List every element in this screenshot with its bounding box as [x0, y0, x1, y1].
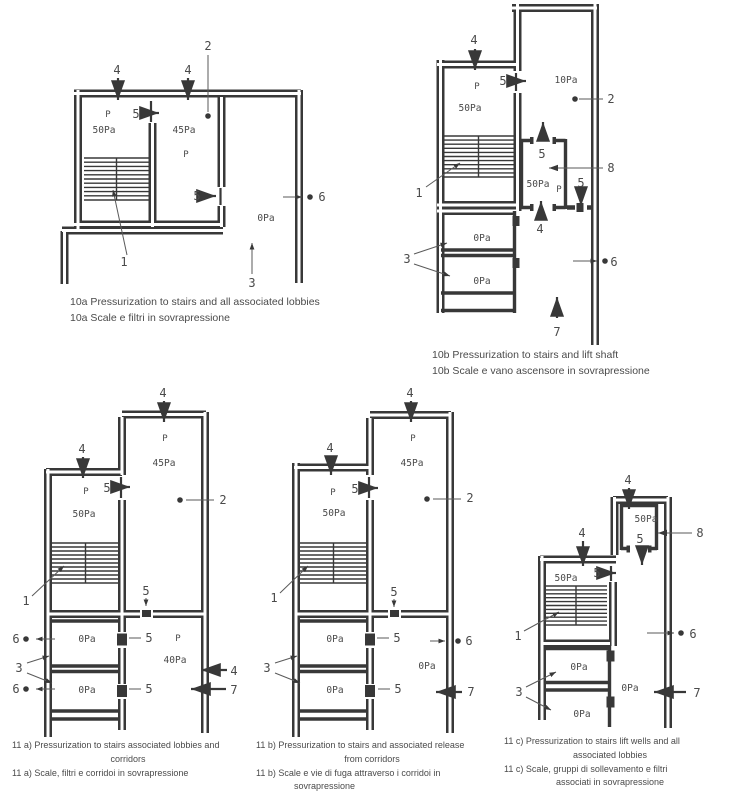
wall-gaps-11c	[540, 497, 668, 728]
label-p: P	[183, 150, 189, 160]
callout-3: 3	[248, 276, 255, 290]
label-0pa: 0Pa	[570, 662, 587, 673]
callout-7: 7	[693, 686, 700, 700]
label-45pa: 45Pa	[153, 458, 176, 469]
callout-5: 5	[499, 74, 506, 88]
callout-2: 2	[204, 39, 211, 53]
figure-11b: 4 P 45Pa 2 4 P 50Pa 5 1 5 0Pa 6 7 3 0Pa …	[263, 386, 474, 737]
callout-6: 6	[318, 190, 325, 204]
callout-5: 5	[103, 481, 110, 495]
door-stub	[648, 546, 652, 553]
dot-10a-6	[307, 194, 313, 200]
label-0pa: 0Pa	[473, 276, 490, 287]
callout-6: 6	[610, 255, 617, 269]
door-11a-corridor	[142, 610, 151, 617]
door-stub	[553, 137, 557, 144]
label-p: P	[474, 82, 480, 92]
callout-4: 4	[536, 222, 543, 236]
callout-6: 6	[689, 627, 696, 641]
figure-11c: 4 50Pa 5 8 4 50Pa 5 1 6 7 3 0Pa 0Pa 0Pa	[514, 473, 703, 728]
callout-2: 2	[466, 491, 473, 505]
figure-11a: 4 P 45Pa 2 4 P 50Pa 5 1 5 P 40Pa 4 7 6 6…	[12, 386, 237, 737]
callout-5: 5	[538, 147, 545, 161]
callout-1: 1	[514, 629, 521, 643]
door-11a-lobby-a	[117, 634, 127, 646]
label-p: P	[410, 434, 416, 444]
callout-4: 4	[326, 441, 333, 455]
callout-1: 1	[415, 186, 422, 200]
label-0pa: 0Pa	[78, 634, 95, 645]
leader-10b-3b	[414, 264, 450, 276]
label-40pa: 40Pa	[164, 655, 187, 666]
label-p: P	[175, 634, 181, 644]
label-p: P	[556, 185, 562, 195]
label-50pa: 50Pa	[323, 508, 346, 519]
callout-5: 5	[593, 566, 600, 580]
caption-line: 10b Pressurization to stairs and lift sh…	[432, 347, 722, 363]
callout-5: 5	[351, 482, 358, 496]
door-stub	[553, 204, 557, 211]
callout-1: 1	[22, 594, 29, 608]
door-10b-lobby-a	[513, 216, 520, 226]
callout-4: 4	[578, 526, 585, 540]
label-45pa: 45Pa	[401, 458, 424, 469]
dot-11b-2	[424, 496, 430, 502]
callout-6: 6	[12, 682, 19, 696]
caption-line: 11 b) Scale e vie di fuga attraverso i c…	[256, 767, 488, 781]
dot-11a-6a	[23, 636, 29, 642]
callout-5: 5	[394, 682, 401, 696]
callout-4: 4	[230, 664, 237, 678]
dot-10b-6	[602, 258, 608, 264]
caption-line: 11 a) Scale, filtri e corridoi in sovrap…	[12, 767, 244, 781]
caption-line: from corridors	[256, 753, 488, 767]
label-0pa: 0Pa	[573, 709, 590, 720]
label-50pa: 50Pa	[93, 125, 116, 136]
caption-line: 10a Pressurization to stairs and all ass…	[70, 294, 400, 310]
label-45pa: 45Pa	[173, 125, 196, 136]
callout-8: 8	[607, 161, 614, 175]
callout-5: 5	[142, 584, 149, 598]
label-0pa: 0Pa	[78, 685, 95, 696]
callout-5: 5	[132, 107, 139, 121]
callout-2: 2	[219, 493, 226, 507]
caption-line: 11 c) Pressurization to stairs lift well…	[504, 735, 716, 749]
stairs-10b	[443, 136, 514, 177]
callout-7: 7	[553, 325, 560, 339]
callout-8: 8	[696, 526, 703, 540]
label-0pa: 0Pa	[326, 634, 343, 645]
door-10b-lobby-b	[513, 258, 520, 268]
callout-3: 3	[263, 661, 270, 675]
label-0pa: 0Pa	[418, 661, 435, 672]
dot-11a-6b	[23, 686, 29, 692]
dot-11b-6	[455, 638, 461, 644]
stairs-11a	[51, 543, 120, 583]
callout-5: 5	[145, 631, 152, 645]
callout-3: 3	[515, 685, 522, 699]
door-stub	[627, 546, 631, 553]
caption-11c: 11 c) Pressurization to stairs lift well…	[504, 735, 716, 790]
callout-4: 4	[113, 63, 120, 77]
caption-line: 10a Scale e filtri in sovrapressione	[70, 310, 400, 326]
caption-line: associated lobbies	[504, 749, 716, 763]
label-p: P	[162, 434, 168, 444]
stairs-11b	[299, 543, 368, 583]
callout-4: 4	[624, 473, 631, 487]
caption-line: 11 a) Pressurization to stairs associate…	[12, 739, 244, 753]
diagram-canvas: 4 4 2 P 50Pa 5 45Pa P 5 0Pa 6 3 1	[0, 0, 729, 797]
callout-6: 6	[465, 634, 472, 648]
callout-5: 5	[393, 631, 400, 645]
label-50pa: 50Pa	[459, 103, 482, 114]
label-p: P	[105, 110, 111, 120]
door-11b-lobby-a	[365, 634, 375, 646]
label-50pa: 50Pa	[527, 179, 550, 190]
callout-5: 5	[390, 585, 397, 599]
label-50pa: 50Pa	[635, 514, 658, 525]
door-11b-corridor	[390, 610, 399, 617]
label-50pa: 50Pa	[73, 509, 96, 520]
callout-6: 6	[12, 632, 19, 646]
door-stub	[530, 137, 534, 144]
caption-line: corridors	[12, 753, 244, 767]
label-0pa: 0Pa	[326, 685, 343, 696]
callout-4: 4	[470, 33, 477, 47]
label-10pa: 10Pa	[555, 75, 578, 86]
stairs-10a	[84, 158, 149, 200]
caption-line: 11 b) Pressurization to stairs and assoc…	[256, 739, 488, 753]
callout-2: 2	[607, 92, 614, 106]
callout-3: 3	[403, 252, 410, 266]
callout-5: 5	[577, 176, 584, 190]
caption-10b: 10b Pressurization to stairs and lift sh…	[432, 347, 722, 379]
callout-5: 5	[145, 682, 152, 696]
door-11c-lobby-a	[607, 651, 615, 662]
door-stub	[530, 204, 534, 211]
caption-10a: 10a Pressurization to stairs and all ass…	[70, 294, 400, 326]
callout-5: 5	[193, 189, 200, 203]
dot-11a-2	[177, 497, 183, 503]
figure-10a: 4 4 2 P 50Pa 5 45Pa P 5 0Pa 6 3 1	[62, 39, 326, 290]
caption-line: 11 c) Scale, gruppi di sollevamento e fi…	[504, 763, 716, 777]
callout-5: 5	[636, 532, 643, 546]
label-0pa: 0Pa	[473, 233, 490, 244]
callout-4: 4	[184, 63, 191, 77]
label-0pa: 0Pa	[257, 213, 274, 224]
door-11b-lobby-b	[365, 685, 375, 697]
caption-11a: 11 a) Pressurization to stairs associate…	[12, 739, 244, 780]
caption-line: 10b Scale e vano ascensore in sovrapress…	[432, 363, 722, 379]
label-p: P	[83, 487, 89, 497]
dot-10a-2	[205, 113, 211, 119]
door-11a-lobby-b	[117, 685, 127, 697]
callout-4: 4	[159, 386, 166, 400]
callout-7: 7	[230, 683, 237, 697]
figure-10b: 4 P 50Pa 5 10Pa 2 1 5 8 50Pa P 5 4 0Pa 0…	[403, 4, 617, 345]
callout-1: 1	[270, 591, 277, 605]
dot-11c-6	[678, 630, 684, 636]
caption-11b: 11 b) Pressurization to stairs and assoc…	[256, 739, 488, 794]
label-0pa: 0Pa	[621, 683, 638, 694]
callout-3: 3	[15, 661, 22, 675]
callout-4: 4	[78, 442, 85, 456]
callout-1: 1	[120, 255, 127, 269]
caption-line: associati in sovrapressione	[504, 776, 716, 790]
door-11c-lobby-b	[607, 697, 615, 708]
caption-line: sovrapressione	[256, 780, 488, 794]
walls-11c	[540, 497, 668, 728]
callout-4: 4	[406, 386, 413, 400]
stairs-11c	[545, 586, 607, 625]
label-p: P	[330, 488, 336, 498]
dot-10b-2	[572, 96, 578, 102]
callout-7: 7	[467, 685, 474, 699]
label-50pa: 50Pa	[555, 573, 578, 584]
